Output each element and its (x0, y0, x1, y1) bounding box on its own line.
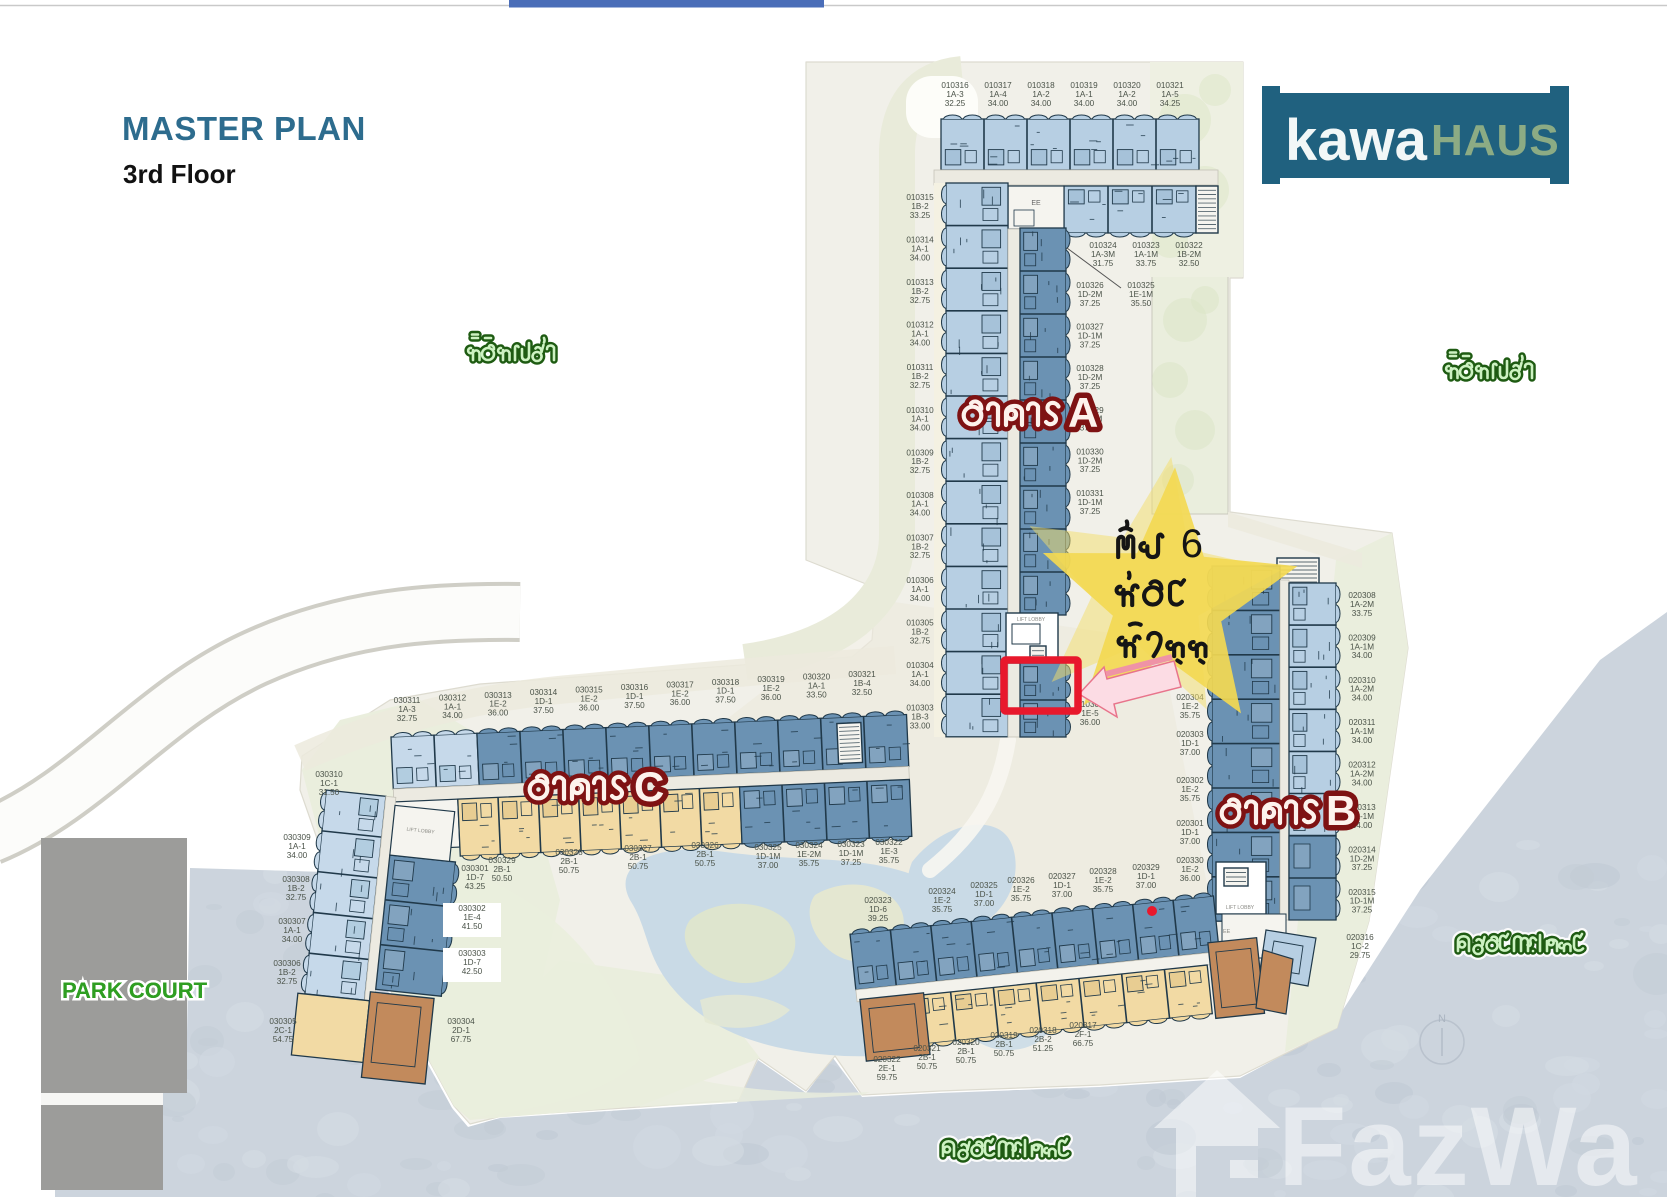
svg-text:0303231D-1M37.25: 0303231D-1M37.25 (837, 840, 865, 867)
svg-text:HAUS: HAUS (1431, 116, 1560, 165)
svg-text:0103271D-1M37.25: 0103271D-1M37.25 (1076, 323, 1104, 350)
svg-text:N: N (1438, 1013, 1446, 1025)
svg-text:MASTER PLAN: MASTER PLAN (122, 110, 366, 147)
svg-text:0203151D-1M37.25: 0203151D-1M37.25 (1348, 888, 1376, 915)
svg-text:EE: EE (1223, 929, 1231, 935)
svg-text:B: B (1326, 787, 1356, 834)
svg-text:0103281D-2M37.25: 0103281D-2M37.25 (1076, 364, 1104, 391)
svg-text:0103251E-1M35.50: 0103251E-1M35.50 (1127, 281, 1155, 308)
svg-text:0203111A-1M34.00: 0203111A-1M34.00 (1349, 718, 1376, 745)
svg-text:0103241A-3M31.75: 0103241A-3M31.75 (1089, 241, 1117, 268)
svg-text:0303241E-2M35.75: 0303241E-2M35.75 (795, 841, 823, 868)
svg-text:3rd Floor: 3rd Floor (123, 159, 236, 189)
svg-text:0103311D-1M37.25: 0103311D-1M37.25 (1076, 489, 1104, 516)
svg-text:A: A (1068, 389, 1098, 436)
svg-text:0103301D-2M37.25: 0103301D-2M37.25 (1076, 447, 1104, 474)
svg-text:LIFT LOBBY: LIFT LOBBY (1017, 617, 1046, 623)
svg-text:0103231A-1M33.75: 0103231A-1M33.75 (1132, 241, 1160, 268)
svg-text:0303251D-1M37.00: 0303251D-1M37.00 (754, 843, 782, 870)
svg-text:0203091A-1M34.00: 0203091A-1M34.00 (1348, 633, 1376, 660)
svg-text:0103221B-2M32.50: 0103221B-2M32.50 (1175, 241, 1203, 268)
svg-text:FazWa: FazWa (1278, 1084, 1639, 1202)
svg-text:0203141D-2M37.25: 0203141D-2M37.25 (1348, 845, 1376, 872)
svg-text:EE: EE (1031, 200, 1041, 207)
svg-text:LIFT LOBBY: LIFT LOBBY (1226, 905, 1255, 911)
svg-text:kawa: kawa (1285, 108, 1428, 173)
svg-text:0203101A-2M34.00: 0203101A-2M34.00 (1348, 676, 1376, 703)
svg-text:0203121A-2M34.00: 0203121A-2M34.00 (1348, 761, 1376, 788)
svg-text:0103261D-2M37.25: 0103261D-2M37.25 (1076, 281, 1104, 308)
svg-text:PARK COURT: PARK COURT (62, 978, 208, 1003)
svg-text:0203081A-2M33.75: 0203081A-2M33.75 (1348, 591, 1376, 618)
svg-text:C: C (634, 763, 664, 810)
svg-text:6: 6 (1181, 522, 1203, 566)
